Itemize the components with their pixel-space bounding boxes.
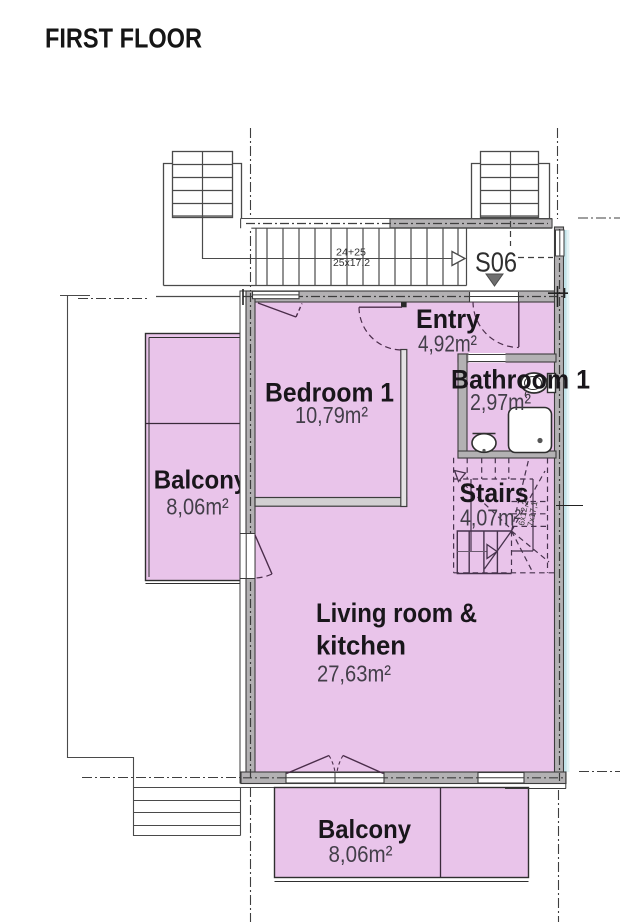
svg-text:27,63m²: 27,63m² [317,661,391,687]
svg-text:Living room &: Living room & [316,598,477,628]
svg-text:25x17.2: 25x17.2 [333,258,370,269]
svg-text:4,07m²: 4,07m² [460,505,521,531]
svg-text:S06: S06 [475,247,517,278]
svg-text:4,92m²: 4,92m² [418,331,477,357]
svg-text:10,79m²: 10,79m² [295,402,368,428]
svg-text:Balcony: Balcony [318,814,411,844]
svg-text:Stairs: Stairs [460,478,529,508]
svg-text:FIRST FLOOR: FIRST FLOOR [45,23,202,54]
svg-text:8,06m²: 8,06m² [329,841,393,867]
svg-text:2,97m²: 2,97m² [470,389,531,415]
svg-text:kitchen: kitchen [316,631,406,661]
svg-text:8,06m²: 8,06m² [166,494,229,520]
svg-text:Entry: Entry [416,304,480,334]
svg-text:24+25: 24+25 [336,248,366,259]
svg-text:Balcony: Balcony [154,465,248,495]
